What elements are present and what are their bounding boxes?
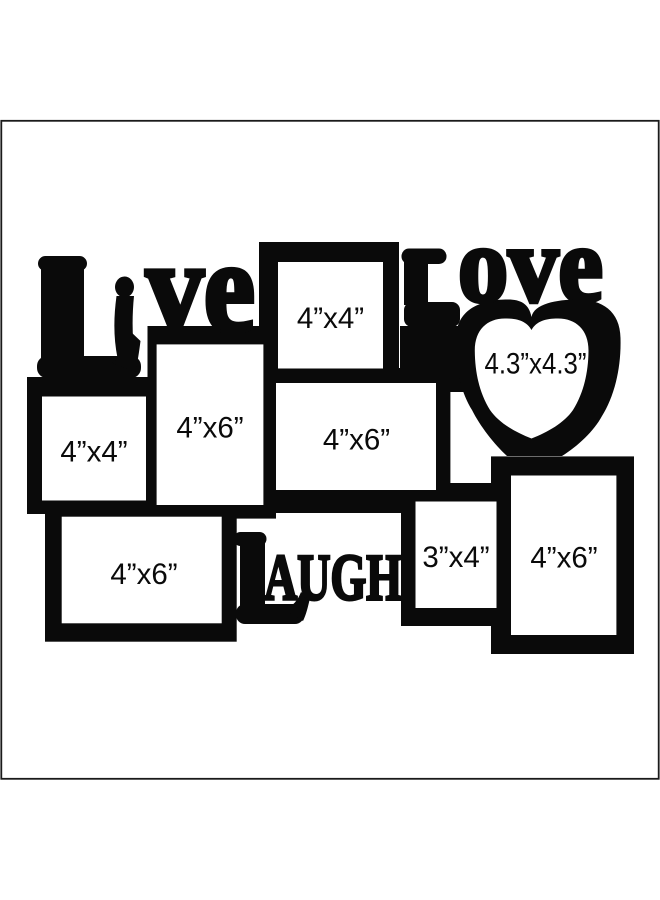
svg-text:4”x4”: 4”x4” (297, 302, 364, 335)
svg-text:ve: ve (146, 215, 255, 360)
svg-text:4”x6”: 4”x6” (176, 412, 243, 445)
svg-text:4”x6”: 4”x6” (323, 424, 390, 457)
svg-text:3”x4”: 3”x4” (422, 541, 489, 574)
svg-text:ove: ove (458, 206, 603, 325)
svg-text:4”x4”: 4”x4” (60, 436, 127, 469)
svg-text:4”x6”: 4”x6” (110, 558, 177, 591)
svg-text:4.3”x4.3”: 4.3”x4.3” (485, 348, 587, 381)
svg-text:AUGH: AUGH (264, 542, 402, 615)
svg-text:4”x6”: 4”x6” (530, 542, 597, 575)
